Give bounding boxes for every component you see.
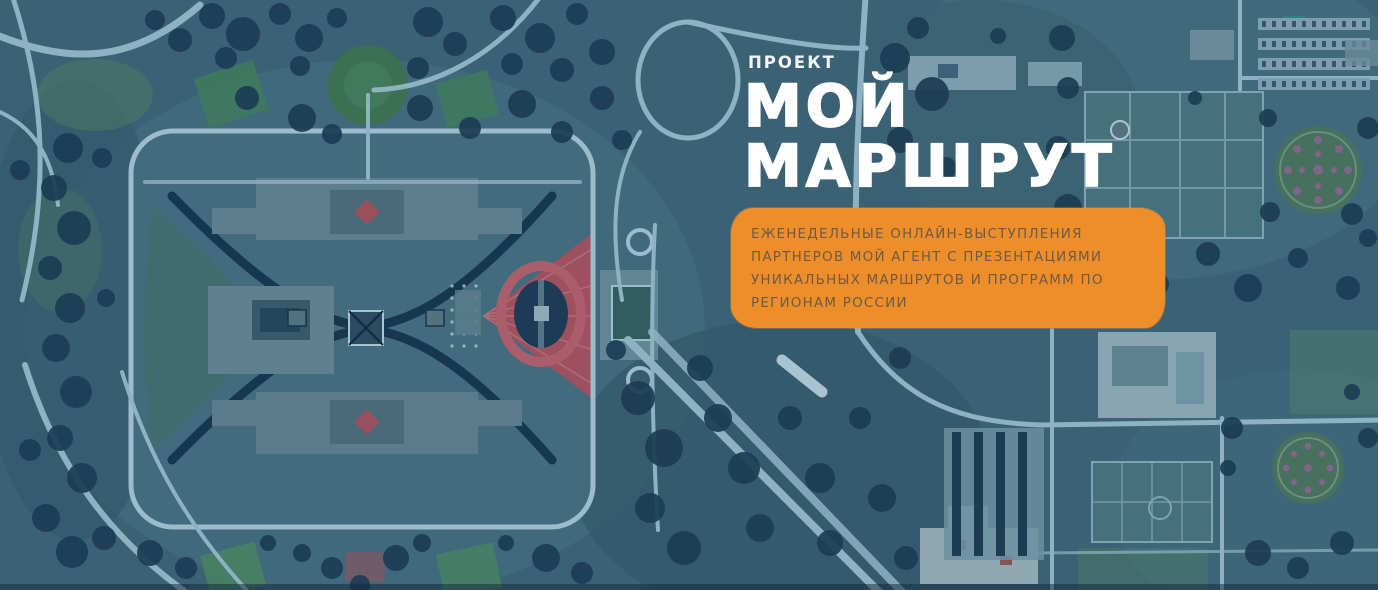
description-box: ЕЖЕНЕДЕЛЬНЫЕ ОНЛАЙН-ВЫСТУПЛЕНИЯ ПАРТНЕРО… [731, 208, 1165, 328]
description-line: РЕГИОНАМ РОССИИ [751, 292, 1145, 315]
hero-content: ПРОЕКТ МОЙМАРШРУТ ЕЖЕНЕДЕЛЬНЫЕ ОНЛАЙН-ВЫ… [0, 0, 1378, 590]
hero-banner: ПРОЕКТ МОЙМАРШРУТ ЕЖЕНЕДЕЛЬНЫЕ ОНЛАЙН-ВЫ… [0, 0, 1378, 590]
description-line: ПАРТНЕРОВ МОЙ АГЕНТ С ПРЕЗЕНТАЦИЯМИ [751, 246, 1145, 269]
project-kicker: ПРОЕКТ [748, 53, 836, 72]
description-line: УНИКАЛЬНЫХ МАРШРУТОВ И ПРОГРАММ ПО [751, 269, 1145, 292]
title-line-1: МОЙ [744, 76, 1116, 136]
page-title: МОЙМАРШРУТ [744, 76, 1116, 196]
title-line-2: МАРШРУТ [744, 136, 1116, 196]
description-line: ЕЖЕНЕДЕЛЬНЫЕ ОНЛАЙН-ВЫСТУПЛЕНИЯ [751, 223, 1145, 246]
